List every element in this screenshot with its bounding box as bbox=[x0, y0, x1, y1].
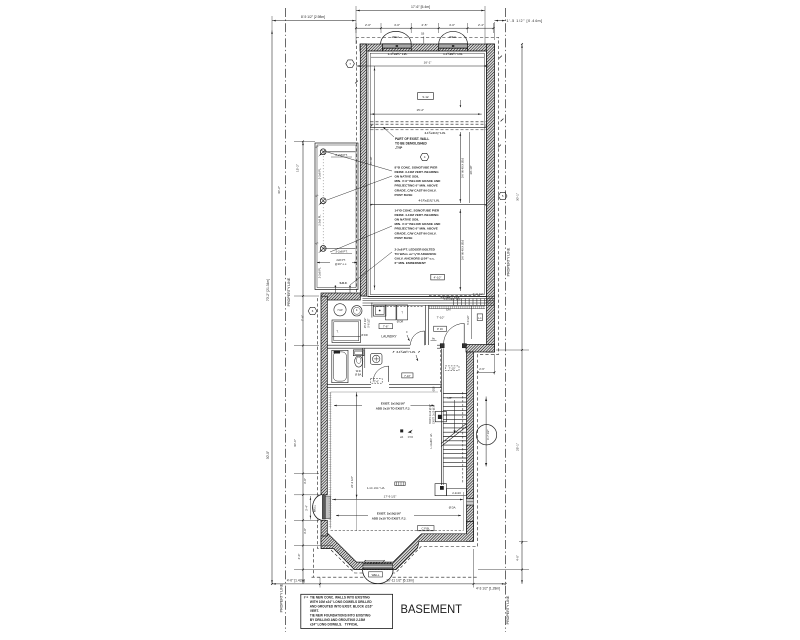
svg-text:2-2x8 PL.: 2-2x8 PL. bbox=[317, 168, 321, 180]
svg-text:EXIST. 2x10 @16": EXIST. 2x10 @16" bbox=[433, 404, 436, 424]
svg-text:CYO: CYO bbox=[408, 436, 413, 439]
svg-text:8"Ø CONC. SONOTUBE PIERREINF.: 8"Ø CONC. SONOTUBE PIERREINF. 3-10M VERT… bbox=[395, 166, 442, 197]
svg-text:4-1¾x11⅞" LVL: 4-1¾x11⅞" LVL bbox=[418, 198, 439, 202]
svg-text:PROPERTY LINE: PROPERTY LINE bbox=[287, 277, 291, 306]
svg-text:7'-10": 7'-10" bbox=[437, 316, 445, 320]
svg-text:2-2x8 PT.: 2-2x8 PT. bbox=[335, 153, 347, 157]
svg-text:7'-10": 7'-10" bbox=[449, 367, 456, 371]
svg-text:8'-9 1/2" [2.98m]: 8'-9 1/2" [2.98m] bbox=[301, 15, 325, 19]
svg-text:Ø16: Ø16 bbox=[432, 386, 435, 391]
svg-text:16'-1": 16'-1" bbox=[424, 60, 432, 64]
svg-text:T.: T. bbox=[336, 330, 338, 334]
svg-text:4'-0": 4'-0" bbox=[394, 23, 400, 27]
svg-text:@16" o.c.: @16" o.c. bbox=[335, 262, 347, 266]
svg-text:W.R.: W.R. bbox=[356, 369, 362, 373]
svg-text:Ø DR: Ø DR bbox=[397, 320, 404, 324]
svg-text:1-1¾x9¼" LVL: 1-1¾x9¼" LVL bbox=[430, 433, 433, 449]
svg-text:Ø DA.: Ø DA. bbox=[449, 505, 457, 509]
svg-text:PROPERTY LINE: PROPERTY LINE bbox=[506, 247, 510, 276]
svg-text:7'-6": 7'-6" bbox=[383, 325, 389, 329]
svg-text:17'-6" [5.4m]: 17'-6" [5.4m] bbox=[411, 5, 430, 9]
svg-text:3'-0": 3'-0" bbox=[303, 528, 307, 534]
svg-text:15'-2": 15'-2" bbox=[416, 108, 424, 112]
svg-text:1-1¾x9¼" LVL: 1-1¾x9¼" LVL bbox=[443, 52, 463, 56]
svg-text:2'-4": 2'-4" bbox=[478, 23, 484, 27]
svg-text:WELL: WELL bbox=[449, 35, 458, 39]
svg-text:7'-10": 7'-10" bbox=[404, 374, 411, 378]
svg-text:1-1¾ LVL" UA.: 1-1¾ LVL" UA. bbox=[367, 486, 386, 490]
svg-text:PROPERTY LINE: PROPERTY LINE bbox=[280, 583, 284, 612]
svg-text:EXIST. 2x10@16": EXIST. 2x10@16" bbox=[377, 511, 402, 515]
svg-text:7'-6": 7'-6" bbox=[301, 315, 305, 321]
svg-text:3⅜" W 40-X Ø16: 3⅜" W 40-X Ø16 bbox=[461, 157, 465, 178]
svg-text:30'-1": 30'-1" bbox=[515, 193, 519, 201]
svg-text:40'-2": 40'-2" bbox=[277, 186, 281, 194]
svg-text:4'-0": 4'-0" bbox=[297, 554, 301, 560]
svg-text:2-2x10: 2-2x10 bbox=[452, 491, 461, 495]
svg-text:70'-2" [21.34m]: 70'-2" [21.34m] bbox=[266, 279, 270, 301]
svg-text:3⅜" W 40-X Ø16: 3⅜" W 40-X Ø16 bbox=[461, 239, 465, 260]
svg-text:WELL: WELL bbox=[372, 573, 380, 577]
svg-text:LAUNDRY: LAUNDRY bbox=[381, 335, 397, 339]
svg-text:30'-0": 30'-0" bbox=[266, 450, 270, 459]
svg-text:BASEMENT: BASEMENT bbox=[401, 602, 463, 616]
svg-text:5-1¾x9¼" LVL: 5-1¾x9¼" LVL bbox=[444, 297, 461, 301]
svg-text:Ø BA.: Ø BA. bbox=[355, 372, 362, 376]
svg-text:5'-6 1/2": 5'-6 1/2" bbox=[367, 318, 370, 327]
svg-text:F.: F. bbox=[356, 309, 358, 312]
svg-text:22'-3 1/2": 22'-3 1/2" bbox=[350, 476, 354, 488]
svg-text:30'-0": 30'-0" bbox=[293, 439, 297, 447]
svg-text:3-2x8 PT.: 3-2x8 PT. bbox=[335, 250, 347, 254]
svg-text:PROPERTY LINE: PROPERTY LINE bbox=[506, 595, 510, 624]
svg-text:P 16: P 16 bbox=[437, 327, 443, 331]
svg-text:4'-0": 4'-0" bbox=[515, 555, 519, 561]
svg-text:2x 2x10: 2x 2x10 bbox=[369, 561, 379, 565]
svg-text:H.W: H.W bbox=[338, 309, 344, 312]
svg-text:3'-4": 3'-4" bbox=[304, 505, 308, 511]
svg-text:17'-9 1/2": 17'-9 1/2" bbox=[384, 494, 397, 498]
svg-text:4-1¾x11⅞" LVL: 4-1¾x11⅞" LVL bbox=[424, 131, 445, 135]
svg-text:DN: DN bbox=[446, 308, 450, 312]
svg-text:2-2x8 PL.: 2-2x8 PL. bbox=[317, 214, 321, 226]
svg-text:2-1¾x9¼" LVL: 2-1¾x9¼" LVL bbox=[397, 350, 416, 354]
svg-text:2-2x8 PL.: 2-2x8 PL. bbox=[317, 267, 321, 279]
svg-text:16'-10": 16'-10" bbox=[369, 157, 373, 166]
svg-text:7'-6": 7'-6" bbox=[374, 379, 379, 383]
svg-text:20'-10": 20'-10" bbox=[469, 166, 473, 175]
svg-text:WELL: WELL bbox=[392, 35, 401, 39]
svg-text:4'-0": 4'-0" bbox=[449, 23, 455, 27]
svg-text:20'-11 1/2" [6.13m]: 20'-11 1/2" [6.13m] bbox=[386, 579, 413, 583]
svg-text:6'-7 1/2": 6'-7 1/2" bbox=[486, 430, 490, 440]
svg-text:2A: 2A bbox=[400, 436, 403, 439]
svg-text:3'-0": 3'-0" bbox=[303, 478, 307, 484]
svg-text:2'-6": 2'-6" bbox=[479, 367, 485, 371]
svg-text:ADD 2x10 TO EXIST. F.J.: ADD 2x10 TO EXIST. F.J. bbox=[376, 406, 411, 410]
svg-text:1'-5 1/2" [0.44m]: 1'-5 1/2" [0.44m] bbox=[507, 19, 543, 23]
svg-text:4'-10": 4'-10" bbox=[434, 276, 442, 280]
svg-text:4'-3 1/2" [1.28m]: 4'-3 1/2" [1.28m] bbox=[476, 586, 500, 590]
svg-text:15'-2": 15'-2" bbox=[295, 164, 299, 172]
svg-text:2'-5": 2'-5" bbox=[422, 23, 428, 27]
svg-text:2'-0": 2'-0" bbox=[365, 23, 371, 27]
svg-text:25'-1": 25'-1" bbox=[515, 443, 519, 451]
svg-text:1B: 1B bbox=[421, 32, 424, 36]
svg-text:S 12: S 12 bbox=[422, 95, 429, 99]
svg-text:EXIST. 2x10@16": EXIST. 2x10@16" bbox=[381, 401, 406, 405]
svg-text:5'-9 1/2": 5'-9 1/2" bbox=[466, 315, 470, 325]
svg-text:1-1¾x9¼" LVL: 1-1¾x9¼" LVL bbox=[388, 52, 408, 56]
svg-text:WELL: WELL bbox=[313, 504, 317, 512]
svg-text:ADD 2x10 TO EXIST. F.J.: ADD 2x10 TO EXIST. F.J. bbox=[372, 517, 407, 521]
svg-text:4'-0" [1.42m]: 4'-0" [1.42m] bbox=[287, 579, 306, 583]
svg-text:Ø DR: Ø DR bbox=[361, 334, 367, 337]
svg-text:14"Ø CONC. SONOTUBE PIERREINF.: 14"Ø CONC. SONOTUBE PIERREINF. 4-10M VER… bbox=[395, 209, 442, 240]
svg-text:S.D.F.: S.D.F. bbox=[339, 281, 347, 285]
